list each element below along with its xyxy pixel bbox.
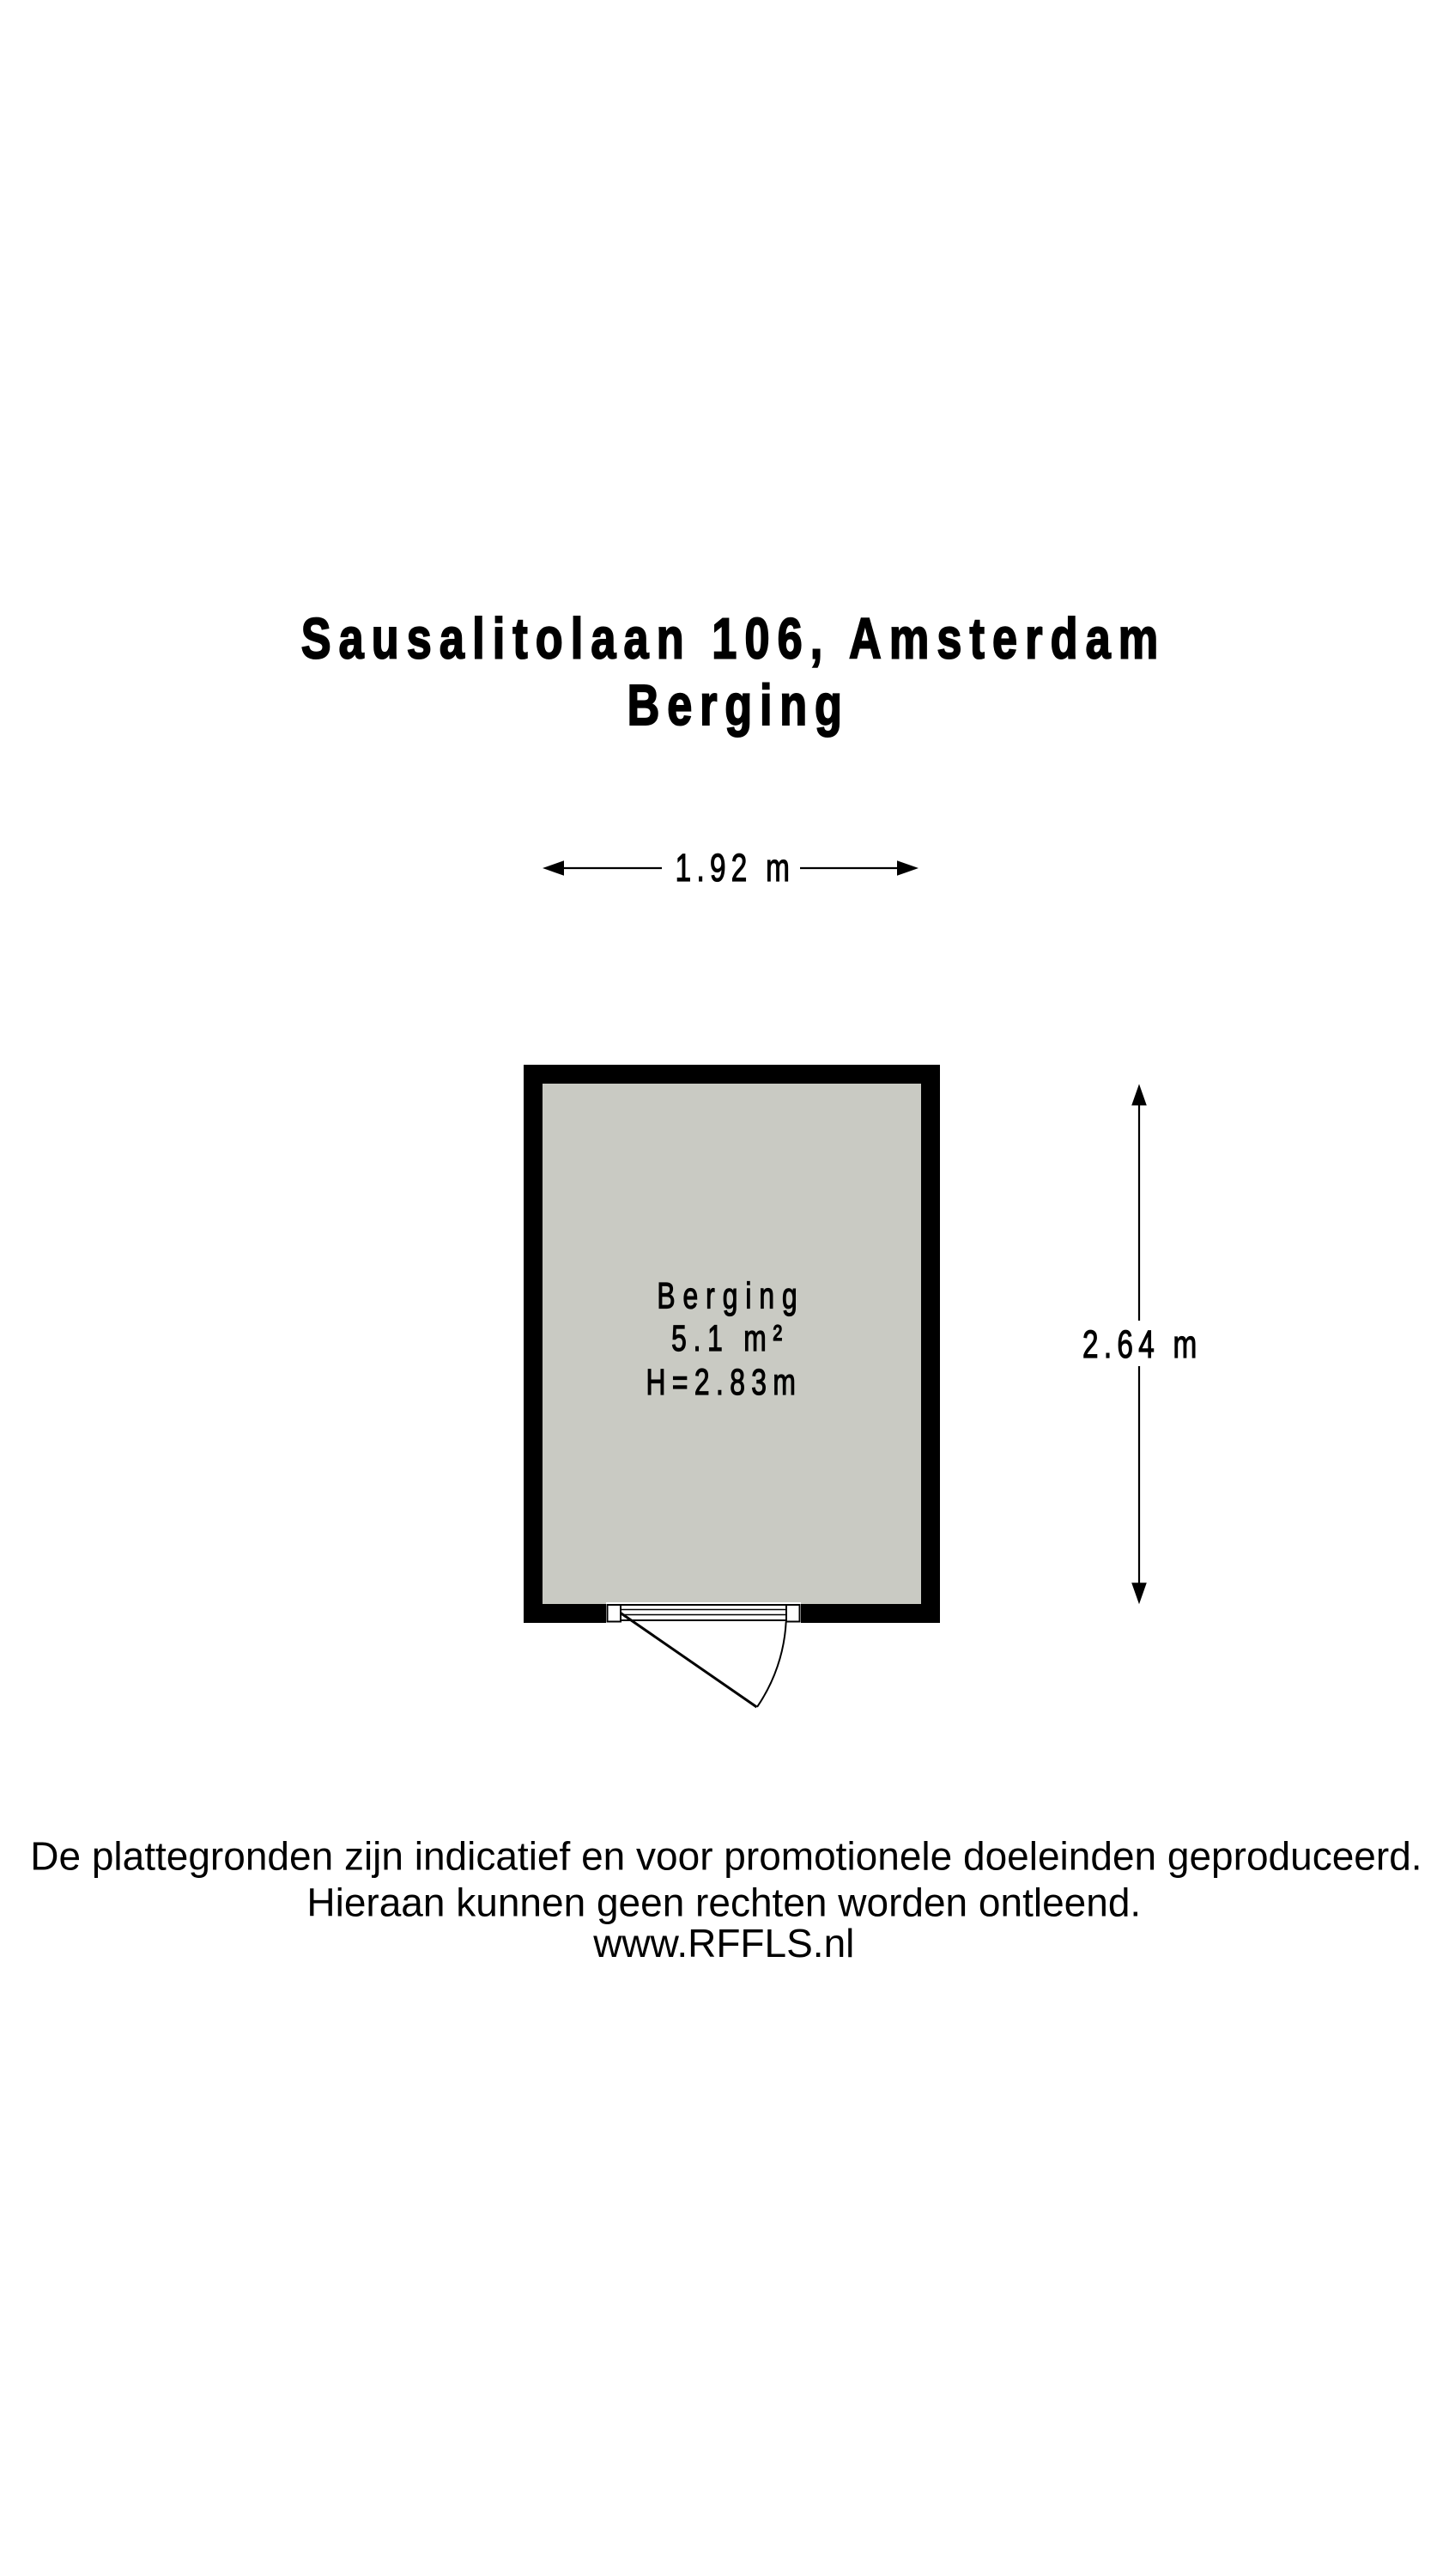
svg-text:2.64 m: 2.64 m: [1082, 1323, 1203, 1366]
svg-text:Hieraan kunnen geen rechten wo: Hieraan kunnen geen rechten worden ontle…: [306, 1880, 1141, 1924]
svg-text:Sausalitolaan 106, Amsterdam: Sausalitolaan 106, Amsterdam: [301, 606, 1167, 671]
svg-text:www.RFFLS.nl: www.RFFLS.nl: [592, 1921, 854, 1965]
svg-text:Berging: Berging: [657, 1276, 804, 1317]
svg-text:De plattegronden zijn indicati: De plattegronden zijn indicatief en voor…: [30, 1834, 1422, 1879]
svg-text:1.92 m: 1.92 m: [676, 847, 796, 890]
svg-text:5.1 m²: 5.1 m²: [671, 1318, 789, 1359]
svg-text:Berging: Berging: [627, 673, 850, 738]
svg-text:H=2.83m: H=2.83m: [646, 1362, 803, 1403]
